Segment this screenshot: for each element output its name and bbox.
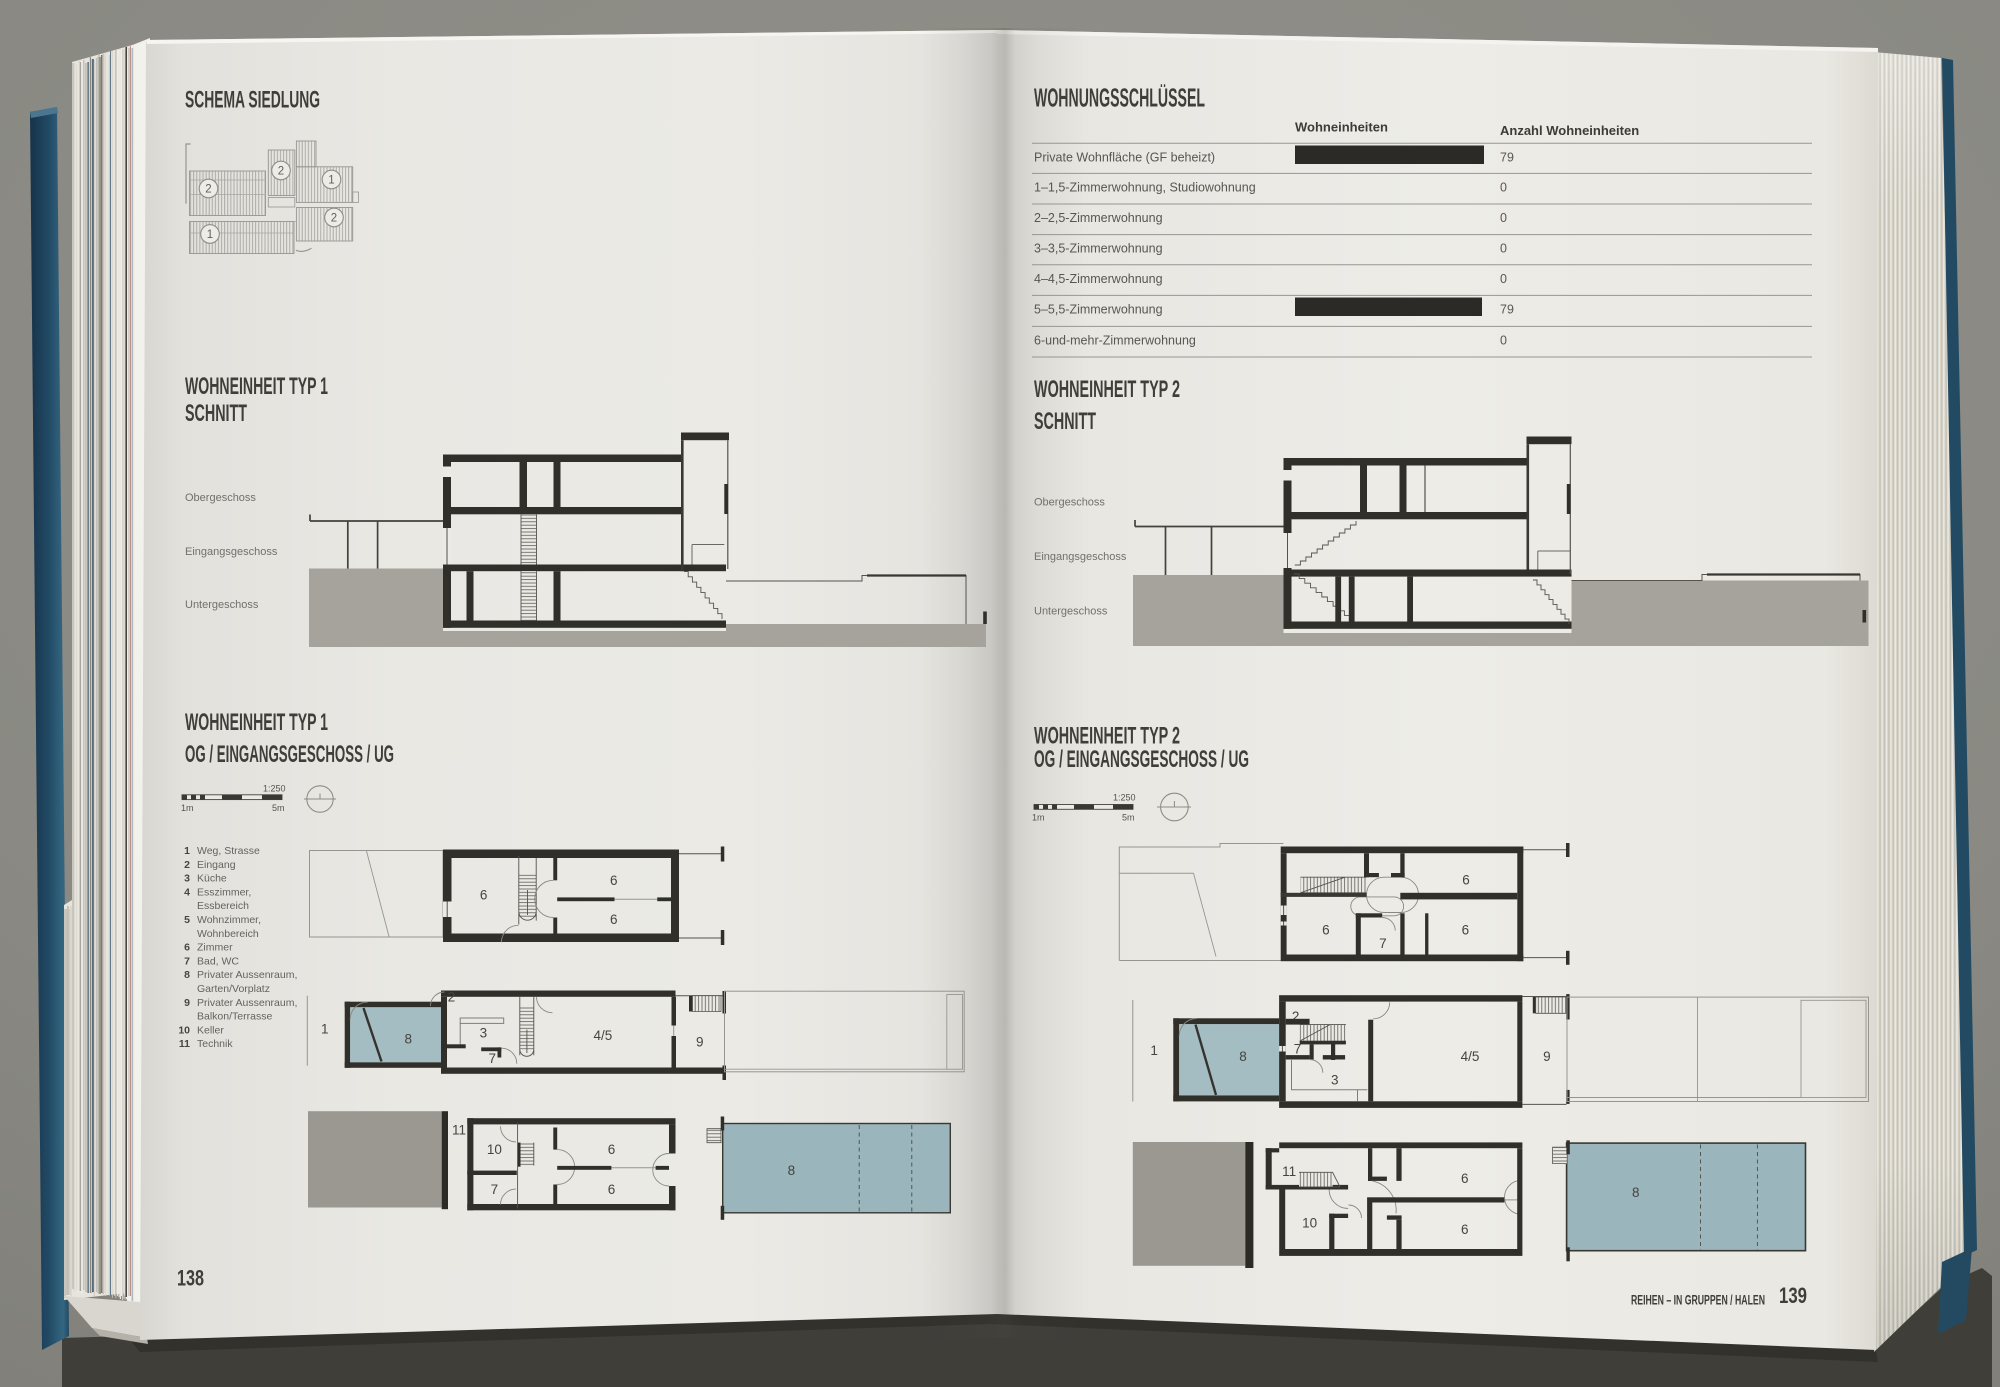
- svg-text:6: 6: [184, 942, 190, 954]
- svg-text:3: 3: [1331, 1073, 1339, 1088]
- svg-text:3–3,5-Zimmerwohnung: 3–3,5-Zimmerwohnung: [1034, 242, 1163, 256]
- svg-text:5m: 5m: [272, 803, 285, 813]
- svg-text:1m: 1m: [181, 803, 194, 813]
- svg-text:Wohneinheiten: Wohneinheiten: [1295, 120, 1388, 135]
- svg-text:6: 6: [1461, 1222, 1469, 1237]
- svg-text:1:250: 1:250: [263, 784, 286, 794]
- svg-text:1: 1: [184, 845, 190, 857]
- svg-text:7: 7: [1379, 936, 1387, 951]
- svg-text:Eingangsgeschoss: Eingangsgeschoss: [1034, 551, 1127, 563]
- svg-text:4–4,5-Zimmerwohnung: 4–4,5-Zimmerwohnung: [1034, 272, 1163, 286]
- svg-text:79: 79: [1500, 150, 1514, 164]
- svg-text:Wohnzimmer,: Wohnzimmer,: [197, 914, 261, 926]
- svg-text:Privater Aussenraum,: Privater Aussenraum,: [197, 997, 297, 1009]
- svg-text:WOHNUNGSSCHLÜSSEL: WOHNUNGSSCHLÜSSEL: [1034, 83, 1205, 113]
- svg-text:Garten/Vorplatz: Garten/Vorplatz: [197, 983, 270, 995]
- svg-text:1: 1: [1150, 1043, 1158, 1058]
- svg-text:2: 2: [205, 184, 211, 196]
- svg-text:0: 0: [1500, 272, 1507, 286]
- svg-text:2: 2: [448, 989, 456, 1004]
- svg-text:0: 0: [1500, 180, 1507, 194]
- svg-text:8: 8: [788, 1163, 796, 1178]
- svg-text:6-und-mehr-Zimmerwohnung: 6-und-mehr-Zimmerwohnung: [1034, 333, 1196, 347]
- svg-text:1: 1: [207, 229, 213, 241]
- svg-text:Zimmer: Zimmer: [197, 942, 233, 954]
- svg-text:Privater Aussenraum,: Privater Aussenraum,: [197, 969, 297, 981]
- svg-text:1: 1: [328, 175, 334, 187]
- svg-text:79: 79: [1500, 302, 1514, 316]
- svg-text:2: 2: [331, 213, 337, 225]
- svg-text:Obergeschoss: Obergeschoss: [185, 492, 256, 504]
- svg-text:WOHNEINHEIT TYP 1: WOHNEINHEIT TYP 1: [185, 709, 328, 736]
- svg-text:7: 7: [491, 1182, 499, 1197]
- svg-text:4/5: 4/5: [1461, 1049, 1480, 1064]
- svg-text:11: 11: [179, 1038, 190, 1050]
- svg-text:6: 6: [608, 1182, 616, 1197]
- svg-text:0: 0: [1500, 333, 1507, 347]
- svg-text:3: 3: [480, 1026, 488, 1041]
- svg-text:2–2,5-Zimmerwohnung: 2–2,5-Zimmerwohnung: [1034, 211, 1163, 225]
- svg-text:9: 9: [1543, 1049, 1551, 1064]
- svg-text:Essbereich: Essbereich: [197, 900, 249, 912]
- svg-text:WOHNEINHEIT TYP 1: WOHNEINHEIT TYP 1: [185, 373, 328, 400]
- svg-text:10: 10: [1302, 1215, 1317, 1230]
- svg-text:6: 6: [610, 912, 618, 927]
- svg-text:5–5,5-Zimmerwohnung: 5–5,5-Zimmerwohnung: [1034, 302, 1163, 316]
- svg-text:10: 10: [178, 1024, 190, 1036]
- svg-text:9: 9: [184, 997, 190, 1009]
- svg-text:Weg, Strasse: Weg, Strasse: [197, 845, 260, 857]
- svg-text:4/5: 4/5: [594, 1028, 613, 1043]
- svg-text:Keller: Keller: [197, 1024, 224, 1036]
- svg-text:6: 6: [1462, 872, 1470, 887]
- svg-text:Balkon/Terrasse: Balkon/Terrasse: [197, 1011, 272, 1023]
- svg-text:4: 4: [184, 886, 190, 898]
- svg-text:6: 6: [1462, 923, 1470, 938]
- svg-text:6: 6: [610, 873, 618, 888]
- svg-text:Küche: Küche: [197, 873, 227, 885]
- svg-text:OG / EINGANGSGESCHOSS / UG: OG / EINGANGSGESCHOSS / UG: [185, 741, 394, 768]
- svg-text:10: 10: [487, 1142, 502, 1157]
- svg-text:1m: 1m: [1032, 813, 1045, 823]
- svg-text:7: 7: [1294, 1042, 1302, 1057]
- svg-text:8: 8: [1239, 1049, 1247, 1064]
- svg-text:1:250: 1:250: [1113, 793, 1136, 803]
- svg-text:SCHNITT: SCHNITT: [1034, 408, 1096, 435]
- svg-text:1–1,5-Zimmerwohnung, Studiowoh: 1–1,5-Zimmerwohnung, Studiowohnung: [1034, 180, 1256, 194]
- svg-text:Untergeschoss: Untergeschoss: [1034, 606, 1108, 618]
- svg-text:SCHEMA SIEDLUNG: SCHEMA SIEDLUNG: [185, 87, 320, 114]
- svg-text:6: 6: [1461, 1171, 1469, 1186]
- svg-text:7: 7: [489, 1051, 497, 1066]
- svg-text:8: 8: [404, 1032, 412, 1047]
- svg-text:Untergeschoss: Untergeschoss: [185, 599, 259, 611]
- svg-text:WOHNEINHEIT TYP 2: WOHNEINHEIT TYP 2: [1034, 376, 1180, 403]
- svg-text:7: 7: [184, 955, 190, 967]
- svg-text:Obergeschoss: Obergeschoss: [1034, 497, 1105, 509]
- svg-text:Anzahl Wohneinheiten: Anzahl Wohneinheiten: [1500, 123, 1639, 138]
- svg-text:Bad, WC: Bad, WC: [197, 955, 239, 967]
- svg-text:139: 139: [1779, 1283, 1807, 1308]
- svg-text:6: 6: [1322, 923, 1330, 938]
- svg-text:REIHEN – IN GRUPPEN / HALEN: REIHEN – IN GRUPPEN / HALEN: [1631, 1293, 1765, 1308]
- svg-text:SCHNITT: SCHNITT: [185, 400, 247, 427]
- svg-text:0: 0: [1500, 242, 1507, 256]
- svg-text:1: 1: [321, 1021, 329, 1036]
- svg-text:Wohnbereich: Wohnbereich: [197, 928, 259, 940]
- svg-text:8: 8: [184, 969, 190, 981]
- svg-text:5: 5: [184, 914, 190, 926]
- svg-text:Private Wohnfläche (GF beheizt: Private Wohnfläche (GF beheizt): [1034, 150, 1215, 164]
- svg-text:0: 0: [1500, 211, 1507, 225]
- svg-text:9: 9: [696, 1034, 704, 1049]
- svg-text:3: 3: [184, 873, 190, 885]
- svg-text:Eingang: Eingang: [197, 859, 236, 871]
- svg-text:Eingangsgeschoss: Eingangsgeschoss: [185, 546, 278, 558]
- svg-text:138: 138: [177, 1266, 204, 1291]
- svg-text:Technik: Technik: [197, 1038, 233, 1050]
- svg-text:OG / EINGANGSGESCHOSS / UG: OG / EINGANGSGESCHOSS / UG: [1034, 746, 1249, 773]
- svg-text:11: 11: [452, 1123, 466, 1138]
- svg-text:5m: 5m: [1122, 813, 1135, 823]
- svg-text:6: 6: [608, 1142, 616, 1157]
- svg-text:2: 2: [184, 859, 190, 871]
- svg-text:2: 2: [278, 166, 284, 178]
- svg-text:8: 8: [1632, 1185, 1640, 1200]
- svg-text:11: 11: [1282, 1164, 1296, 1179]
- svg-text:6: 6: [480, 888, 488, 903]
- svg-text:Esszimmer,: Esszimmer,: [197, 886, 251, 898]
